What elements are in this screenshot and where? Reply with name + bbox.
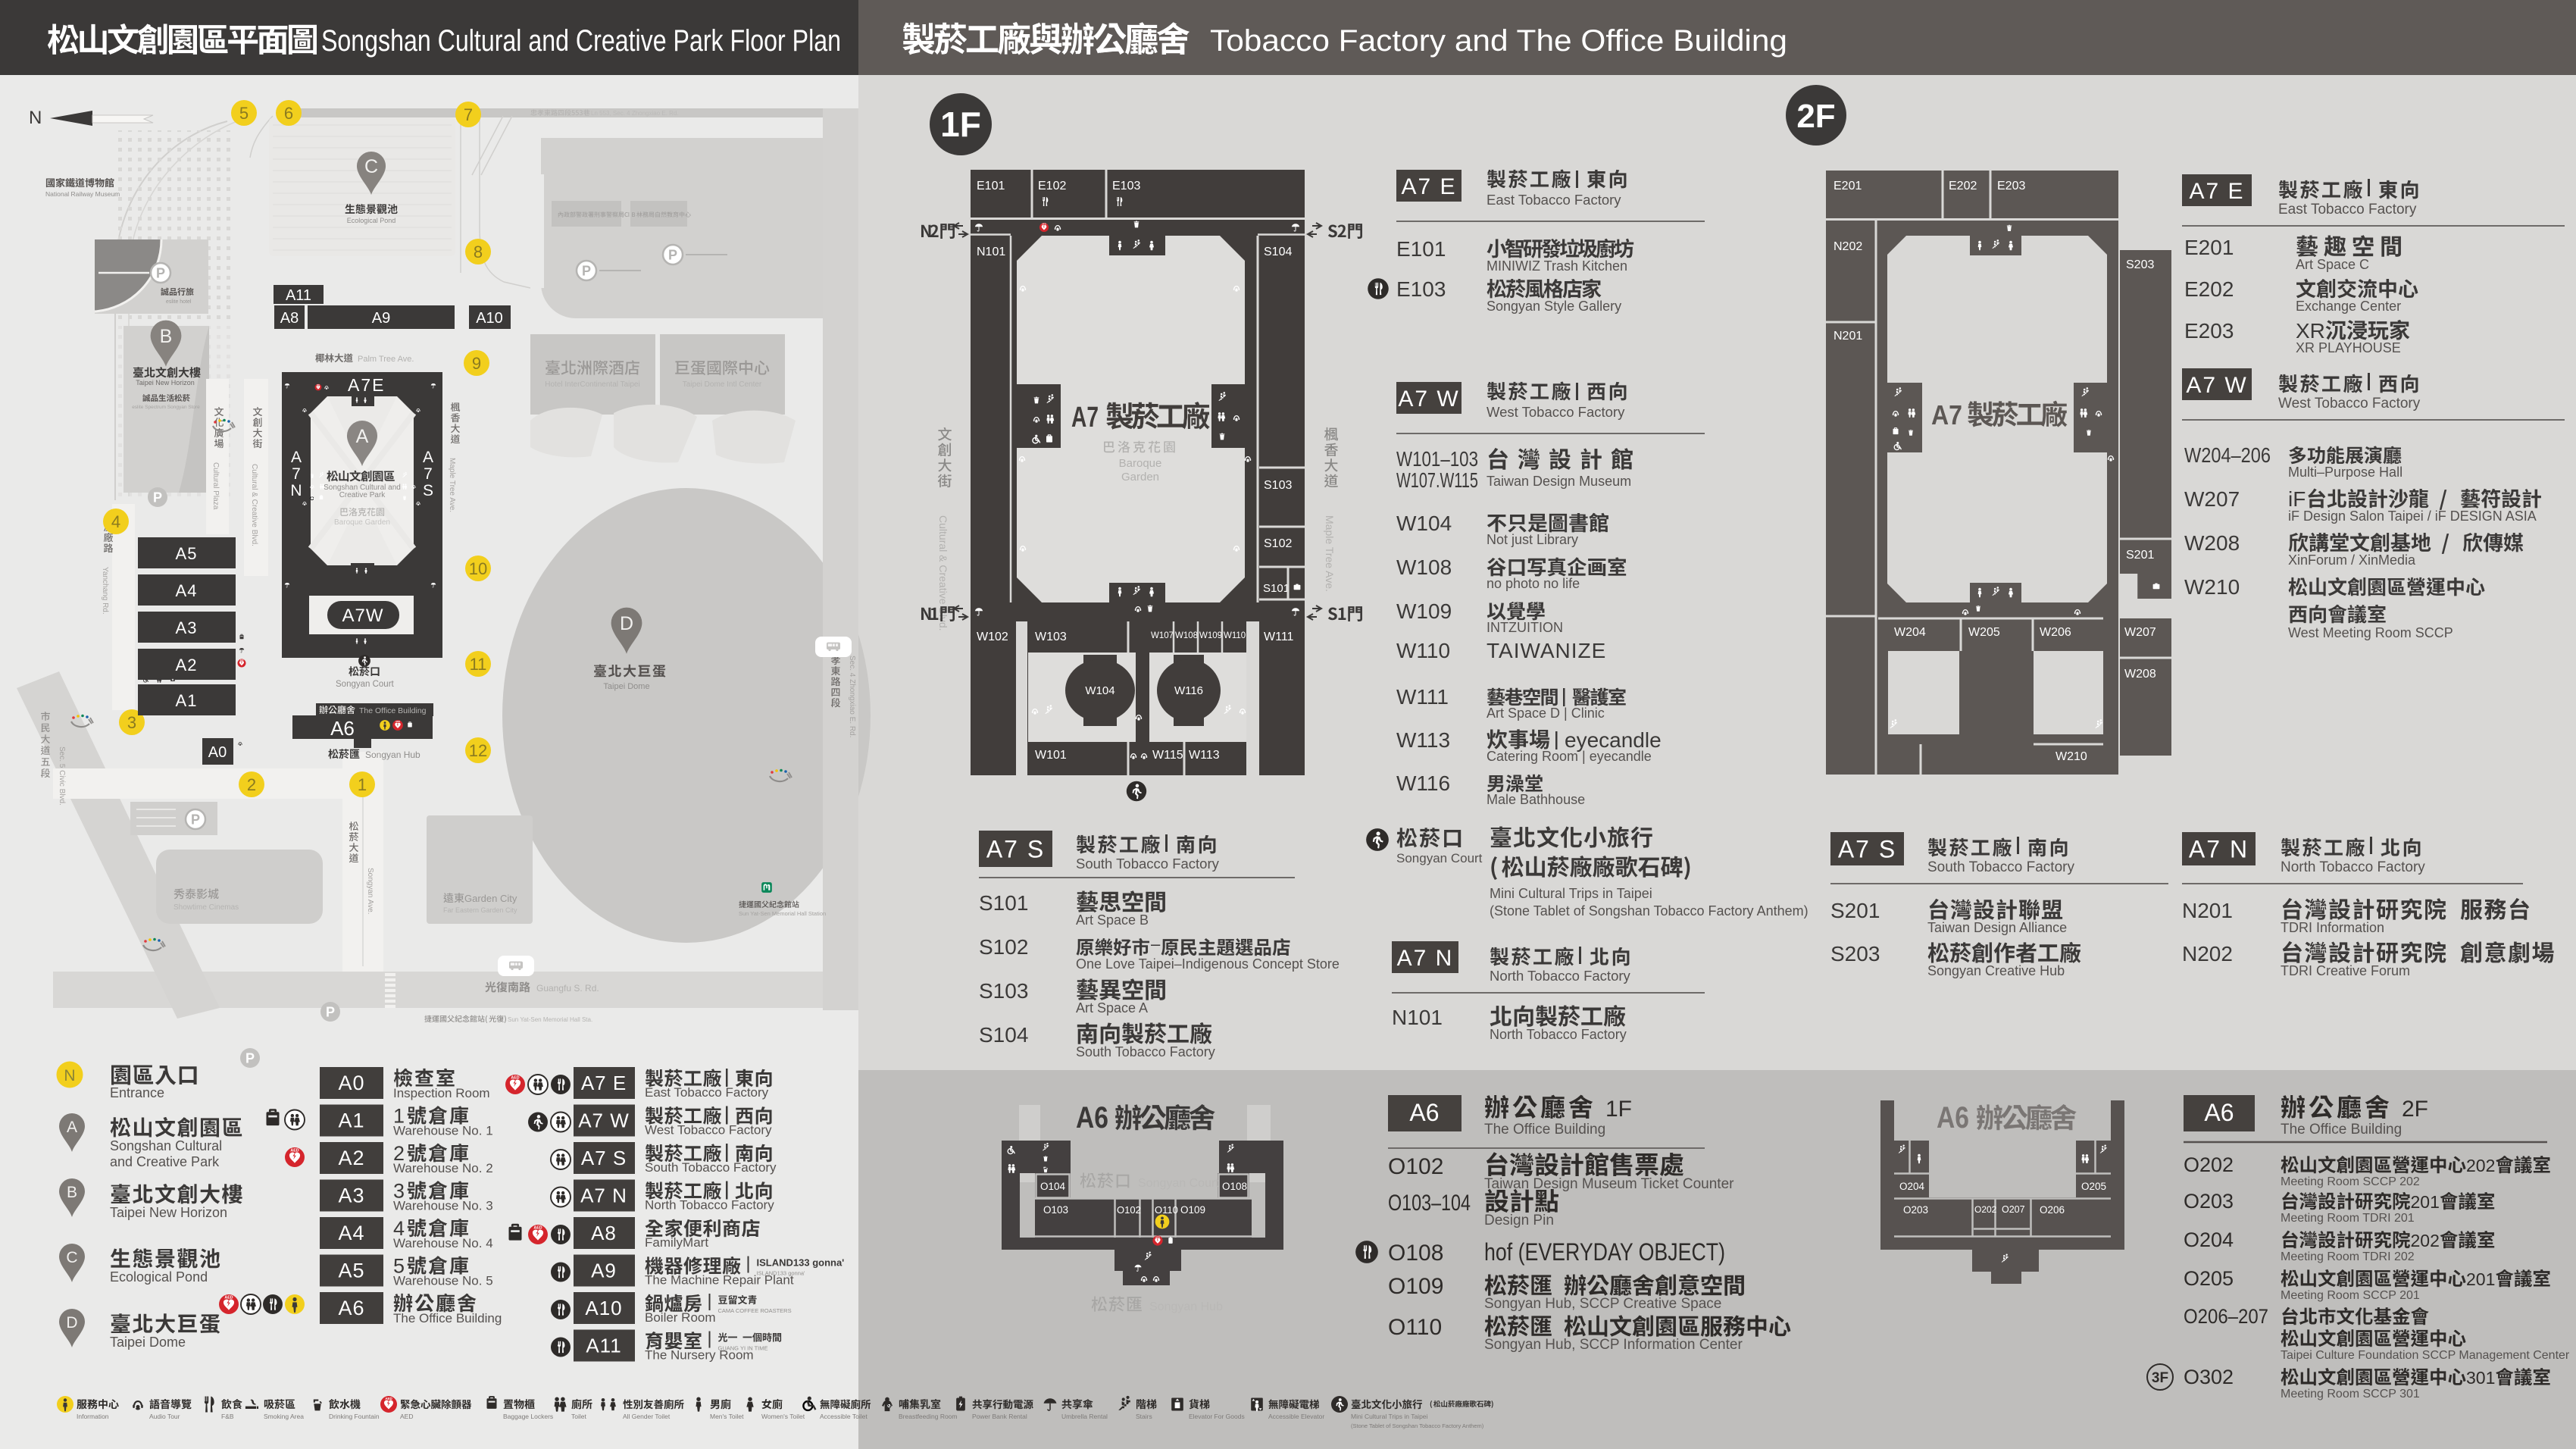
svg-text:Ecological Pond: Ecological Pond [110,1269,208,1285]
svg-text:W111: W111 [1264,631,1294,643]
svg-text:Toilet: Toilet [571,1413,586,1420]
svg-text:Taipei Dome: Taipei Dome [603,682,649,691]
svg-text:West Tobacco Factory: West Tobacco Factory [1487,404,1625,420]
svg-text:Smoking Area: Smoking Area [264,1413,304,1420]
svg-text:11: 11 [470,655,487,674]
svg-text:North Tobacco Factory: North Tobacco Factory [645,1198,774,1213]
svg-text:6: 6 [284,104,293,123]
svg-text:A0: A0 [208,744,227,761]
svg-text:S104: S104 [1264,246,1292,258]
svg-text:A7 N: A7 N [2189,836,2249,863]
svg-text:C: C [66,1249,77,1266]
svg-text:N: N [29,108,42,128]
svg-text:Boiler Room: Boiler Room [645,1310,716,1325]
svg-text:3F: 3F [2152,1370,2168,1386]
svg-text:A7E: A7E [348,375,385,395]
svg-text:Male Bathhouse: Male Bathhouse [1487,792,1585,807]
svg-text:–: – [1151,934,1161,953]
svg-text:W208: W208 [2124,668,2156,681]
svg-text:A6: A6 [1937,1101,1969,1134]
svg-text:O202: O202 [1974,1204,1997,1215]
svg-text:W109: W109 [1396,599,1452,623]
svg-text:S203: S203 [1830,942,1880,965]
svg-text:Songyan Style Gallery: Songyan Style Gallery [1487,299,1621,314]
svg-text:W210: W210 [2055,750,2087,763]
svg-text:N202: N202 [1834,240,1862,253]
svg-text:A9: A9 [591,1260,617,1282]
svg-text:E101: E101 [1396,237,1446,261]
svg-text:E101: E101 [977,180,1005,192]
svg-text:B: B [67,1184,77,1201]
svg-text:201: 201 [2411,1192,2440,1212]
svg-text:Taipei Culture Foundation SCCP: Taipei Culture Foundation SCCP Managemen… [2281,1349,2570,1362]
svg-text:Women's Toilet: Women's Toilet [761,1413,805,1420]
svg-text:O109: O109 [1180,1204,1205,1216]
svg-text:9: 9 [472,354,481,373]
svg-text:W210: W210 [2184,575,2240,599]
svg-text:W113: W113 [1396,728,1450,752]
svg-text:O205: O205 [2184,1267,2234,1290]
svg-text:Sec. 5 Civic Blvd.: Sec. 5 Civic Blvd. [58,746,66,806]
svg-text:A: A [291,449,302,466]
svg-text:W107.W115: W107.W115 [1396,468,1478,492]
svg-text:8: 8 [474,243,483,261]
svg-text:7: 7 [464,105,473,124]
svg-text:West Meeting Room SCCP: West Meeting Room SCCP [2288,625,2453,640]
svg-text:A8: A8 [280,310,299,327]
svg-text:A6: A6 [330,717,355,740]
svg-text:Ecological Pond: Ecological Pond [347,217,396,224]
svg-text:Stairs: Stairs [1136,1413,1152,1420]
svg-text:A3: A3 [338,1185,364,1207]
svg-text:Taipei Dome: Taipei Dome [110,1335,186,1350]
svg-text:Songyan Court: Songyan Court [1138,1177,1219,1190]
svg-text:O207: O207 [2002,1204,2025,1215]
svg-text:O109: O109 [1388,1274,1443,1299]
svg-text:O108: O108 [1388,1241,1443,1266]
svg-text:W204–206: W204–206 [2184,443,2271,467]
svg-text:Garden City: Garden City [464,893,517,904]
svg-text:Songshan Cultural and Creative: Songshan Cultural and Creative Park Floo… [321,24,841,58]
svg-text:N: N [64,1067,75,1084]
svg-text:XR: XR [2296,319,2325,343]
svg-text:W101–103: W101–103 [1396,447,1478,471]
svg-text:A3: A3 [176,618,198,637]
svg-text:W207: W207 [2124,626,2156,639]
svg-text:2F: 2F [1796,98,1835,135]
svg-text:Inspection Room: Inspection Room [393,1086,490,1100]
svg-text:Showtime Cinemas: Showtime Cinemas [174,903,239,912]
svg-text:W107: W107 [1151,631,1174,640]
svg-text:Not just Library: Not just Library [1487,532,1578,547]
svg-text:O206: O206 [2040,1204,2065,1216]
svg-text:A11: A11 [286,287,311,304]
svg-text:Songshan Cultural: Songshan Cultural [110,1138,222,1153]
svg-text:W110: W110 [1224,631,1246,640]
svg-text:Songyan Court: Songyan Court [1396,851,1483,865]
svg-text:Songyan Hub: Songyan Hub [365,750,420,760]
svg-text:B: B [160,326,173,347]
svg-text:W115: W115 [1152,749,1183,762]
svg-text:North Tobacco Factory: North Tobacco Factory [1490,968,1631,984]
svg-text:S203: S203 [2126,258,2154,271]
svg-text:E202: E202 [1949,180,1977,192]
svg-text:W101: W101 [1035,749,1067,762]
svg-text:Maple Tree Ave.: Maple Tree Ave. [448,458,456,512]
svg-text:2: 2 [247,775,256,794]
svg-text:GUANG YI IN TIME: GUANG YI IN TIME [718,1345,768,1352]
svg-text:Art Space D | Clinic: Art Space D | Clinic [1487,706,1605,721]
svg-text:eslite hotel: eslite hotel [166,299,192,305]
svg-text:eslite Spectrum Songyan Store: eslite Spectrum Songyan Store [132,405,200,410]
svg-text:W113: W113 [1189,749,1220,762]
svg-text:W104: W104 [1396,512,1452,535]
svg-text:Sun Yat-Sen Memorial Hall Stat: Sun Yat-Sen Memorial Hall Station [739,910,826,917]
svg-text:East Tobacco Factory: East Tobacco Factory [1487,192,1621,208]
svg-text:Far Eastern Garden City: Far Eastern Garden City [443,906,517,914]
svg-text:7: 7 [424,465,433,483]
svg-text:Meeting Room SCCP 201: Meeting Room SCCP 201 [2281,1289,2420,1302]
svg-text:Men's Toilet: Men's Toilet [710,1413,744,1420]
svg-text:Songyan Creative Hub: Songyan Creative Hub [1927,963,2065,978]
svg-text:Mini Cultural Trips in Taipei: Mini Cultural Trips in Taipei [1351,1413,1428,1420]
svg-text:1F: 1F [940,105,981,144]
svg-text:A6: A6 [2204,1099,2234,1126]
svg-text:E203: E203 [1997,180,2025,192]
svg-text:The Office Building: The Office Building [1484,1122,1605,1138]
svg-text:Elevator For Goods: Elevator For Goods [1189,1413,1245,1420]
svg-text:Songyan Court: Songyan Court [336,680,395,689]
svg-text:Taiwan Design Alliance: Taiwan Design Alliance [1927,920,2067,935]
svg-text:W104: W104 [1085,684,1114,697]
svg-text:Guangfu S. Rd.: Guangfu S. Rd. [536,983,599,994]
svg-text:1: 1 [358,775,367,794]
svg-text:Art Space C: Art Space C [2296,257,2369,272]
svg-text:Information: Information [77,1413,109,1420]
svg-text:Songyan Ave.: Songyan Ave. [366,868,374,915]
svg-text:Taipei New Horizon: Taipei New Horizon [110,1205,227,1220]
svg-text:Cultural Plaza: Cultural Plaza [211,462,220,510]
svg-text:iF: iF [2288,487,2306,511]
svg-text:A6: A6 [338,1297,364,1319]
svg-text:North Tobacco Factory: North Tobacco Factory [1490,1027,1627,1042]
svg-text:South Tobacco Factory: South Tobacco Factory [645,1160,777,1175]
svg-text:S103: S103 [979,979,1028,1003]
svg-text:A: A [67,1119,77,1136]
svg-text:O204: O204 [1899,1181,1925,1192]
svg-text:Warehouse No. 4: Warehouse No. 4 [393,1236,493,1250]
svg-text:(Stone Tablet of Songshan Toba: (Stone Tablet of Songshan Tobacco Factor… [1351,1422,1484,1429]
svg-text:One Love Taipei–Indigenous Con: One Love Taipei–Indigenous Concept Store [1076,956,1340,972]
svg-text:A: A [423,449,433,466]
svg-text:South Tobacco Factory: South Tobacco Factory [1076,1044,1215,1059]
svg-text:O102: O102 [1117,1204,1141,1216]
svg-text:O108: O108 [1222,1181,1247,1192]
svg-text:A7 N: A7 N [580,1185,627,1207]
svg-text:S: S [423,482,433,499]
svg-text:A6: A6 [1076,1101,1108,1134]
svg-text:West Tobacco Factory: West Tobacco Factory [645,1123,772,1138]
svg-text:O102: O102 [1388,1154,1443,1179]
svg-text:Meeting Room SCCP 301: Meeting Room SCCP 301 [2281,1388,2420,1400]
svg-text:The Office Building: The Office Building [393,1311,502,1325]
svg-text:201: 201 [2466,1269,2495,1289]
svg-text:S104: S104 [979,1023,1028,1047]
svg-text:W108: W108 [1396,556,1452,579]
svg-text:Warehouse No. 3: Warehouse No. 3 [393,1199,493,1213]
svg-text:N202: N202 [2182,942,2233,965]
svg-text:S102: S102 [979,935,1028,959]
svg-text:The Office Building: The Office Building [359,706,427,715]
svg-text:Drinking Fountain: Drinking Fountain [329,1413,380,1420]
svg-text:Catering Room | eyecandle: Catering Room | eyecandle [1487,749,1652,764]
svg-text:3: 3 [127,713,136,732]
svg-text:E202: E202 [2184,277,2234,301]
svg-text:C: C [364,156,378,177]
svg-text:Tobacco Factory and The Office: Tobacco Factory and The Office Building [1210,24,1787,58]
svg-text:Art Space A: Art Space A [1076,1000,1148,1016]
svg-text:INTZUITION: INTZUITION [1487,620,1563,635]
svg-text:A11: A11 [586,1335,621,1357]
svg-text:A4: A4 [338,1222,364,1244]
svg-text:A7: A7 [1931,399,1962,430]
svg-text:O203: O203 [2184,1190,2234,1213]
svg-text:Taiwan Design Museum Ticket Co: Taiwan Design Museum Ticket Counter [1484,1176,1734,1192]
svg-text:S201: S201 [1830,899,1880,922]
svg-text:E103: E103 [1396,277,1446,301]
svg-text:A7 E: A7 E [1401,174,1456,199]
svg-text:Baroque Garden: Baroque Garden [334,518,390,527]
svg-text:Taiwan Design Museum: Taiwan Design Museum [1487,474,1631,489]
svg-text:W108: W108 [1175,631,1198,640]
svg-text:A: A [356,426,369,447]
svg-text:5: 5 [239,104,249,123]
svg-text:S101: S101 [979,891,1028,915]
svg-text:D: D [620,613,633,634]
svg-text:XR PLAYHOUSE: XR PLAYHOUSE [2296,340,2401,355]
svg-text:Power Bank Rental: Power Bank Rental [972,1413,1027,1420]
svg-text:A9: A9 [372,310,390,327]
svg-text:Maple Tree Ave.: Maple Tree Ave. [1324,515,1336,592]
svg-text:Accessible Elevator: Accessible Elevator [1268,1413,1324,1420]
svg-text:A7 S: A7 S [581,1147,627,1169]
svg-text:202: 202 [2411,1231,2440,1250]
svg-text:A0: A0 [338,1072,364,1094]
svg-text:Ln 553, Sec. 4 Zhongxiao E. Rd: Ln 553, Sec. 4 Zhongxiao E. Rd. [591,110,679,117]
svg-text:W111: W111 [1396,685,1449,709]
svg-text:4: 4 [111,512,120,531]
svg-text:A10: A10 [476,310,503,327]
svg-text:no photo no life: no photo no life [1487,576,1580,591]
svg-text:Warehouse No. 1: Warehouse No. 1 [393,1124,493,1138]
svg-text:A2: A2 [176,656,198,674]
svg-text:W208: W208 [2184,531,2240,555]
svg-text:AED: AED [400,1413,413,1420]
svg-text:W116: W116 [1396,771,1450,795]
svg-text:D: D [66,1314,77,1332]
svg-text:O103: O103 [1043,1204,1068,1216]
svg-text:East Tobacco Factory: East Tobacco Factory [2278,202,2417,218]
svg-text:O204: O204 [2184,1228,2234,1251]
svg-text:N201: N201 [1834,330,1862,343]
svg-text:A7 W: A7 W [2186,373,2247,398]
svg-text:A1: A1 [176,691,198,710]
svg-text:O203: O203 [1903,1204,1928,1216]
svg-text:Hotel InterContinental Taipei: Hotel InterContinental Taipei [545,380,639,389]
svg-text:202: 202 [2466,1156,2495,1175]
svg-text:S201: S201 [2126,549,2154,562]
svg-text:All Gender Toilet: All Gender Toilet [623,1413,671,1420]
svg-text:O104: O104 [1040,1181,1066,1192]
svg-text:A5: A5 [176,544,198,563]
svg-text:South Tobacco Factory: South Tobacco Factory [1927,859,2074,875]
svg-text:Taipei New Horizon: Taipei New Horizon [136,379,195,387]
svg-text:Warehouse No. 5: Warehouse No. 5 [393,1274,493,1288]
svg-text:S103: S103 [1264,479,1292,492]
svg-text:O302: O302 [2184,1366,2234,1388]
svg-text:Accessible Toilet: Accessible Toilet [820,1413,868,1420]
svg-text:O206–207: O206–207 [2184,1305,2268,1328]
svg-text:E201: E201 [1834,180,1862,192]
svg-text:Palm Tree Ave.: Palm Tree Ave. [358,355,414,364]
svg-text:Songyan Hub: Songyan Hub [1149,1300,1223,1313]
svg-text:W103: W103 [1035,631,1067,643]
svg-text:South Tobacco Factory: South Tobacco Factory [1076,856,1220,872]
svg-text:O110: O110 [1388,1315,1442,1340]
svg-text:A4: A4 [176,581,198,600]
svg-text:(Stone Tablet of Songshan Toba: (Stone Tablet of Songshan Tobacco Factor… [1490,903,1809,919]
svg-text:Design Pin: Design Pin [1484,1213,1554,1228]
svg-text:A7W: A7W [342,606,383,626]
svg-text:East Tobacco Factory: East Tobacco Factory [645,1085,769,1100]
svg-text:O103–104: O103–104 [1388,1191,1471,1216]
svg-text:Meeting Room TDRI 202: Meeting Room TDRI 202 [2281,1250,2415,1263]
svg-text:O110: O110 [1155,1204,1178,1216]
svg-text:Meeting Room SCCP 202: Meeting Room SCCP 202 [2281,1175,2420,1188]
svg-text:N201: N201 [2182,899,2233,922]
svg-text:A7 N: A7 N [1397,946,1454,971]
svg-text:Sun Yat-Sen Memorial Hall Sta.: Sun Yat-Sen Memorial Hall Sta. [508,1016,592,1023]
svg-text:A7 S: A7 S [986,836,1045,863]
svg-text:Exchange Center: Exchange Center [2296,299,2401,314]
svg-text:North Tobacco Factory: North Tobacco Factory [2281,859,2425,875]
svg-text:MINIWIZ Trash Kitchen: MINIWIZ Trash Kitchen [1487,258,1627,274]
svg-text:N: N [290,482,302,499]
svg-text:Baggage Lockers: Baggage Lockers [503,1413,553,1420]
svg-text:TDRI Information: TDRI Information [2281,920,2384,935]
svg-text:Warehouse No. 2: Warehouse No. 2 [393,1161,493,1175]
svg-text:West Tobacco Factory: West Tobacco Factory [2278,396,2421,412]
svg-text:A7: A7 [1071,402,1099,433]
svg-text:301: 301 [2466,1368,2495,1388]
svg-text:A7 W: A7 W [1398,387,1459,412]
svg-text:National Railway Museum: National Railway Museum [45,190,120,198]
svg-text:hof (EVERYDAY OBJECT): hof (EVERYDAY OBJECT) [1484,1238,1725,1266]
svg-text:Songyan Hub, SCCP Creative Spa: Songyan Hub, SCCP Creative Space [1484,1296,1721,1312]
svg-text:A7 W: A7 W [578,1109,630,1132]
svg-text:W110: W110 [1396,639,1450,662]
svg-text:TAIWANIZE: TAIWANIZE [1487,639,1606,662]
svg-text:Garden: Garden [1121,471,1159,484]
svg-text:A10: A10 [585,1297,622,1319]
svg-text:A7 E: A7 E [2189,179,2244,204]
svg-text:ISLAND133 gonna': ISLAND133 gonna' [757,1257,845,1269]
svg-text:A1: A1 [338,1109,364,1132]
svg-text:O202: O202 [2184,1153,2234,1176]
svg-text:F&B: F&B [221,1413,234,1420]
svg-text:Songyan Hub, SCCP Information: Songyan Hub, SCCP Information Center [1484,1337,1743,1353]
svg-text:A8: A8 [591,1222,617,1244]
svg-text:Yanchang Rd.: Yanchang Rd. [101,567,109,615]
svg-text:XinForum / XinMedia: XinForum / XinMedia [2288,552,2416,568]
svg-text:A2: A2 [338,1147,364,1169]
svg-text:A7 S: A7 S [1838,836,1896,863]
svg-text:W205: W205 [1968,626,2000,639]
svg-text:Sec. 4 Zhongxiao E. Rd.: Sec. 4 Zhongxiao E. Rd. [848,656,856,737]
svg-text:W116: W116 [1174,684,1203,697]
svg-text:7: 7 [292,465,301,483]
svg-text:1F: 1F [1605,1097,1632,1122]
svg-text:Audio Tour: Audio Tour [149,1413,180,1420]
svg-text:A7 E: A7 E [581,1072,627,1094]
svg-text:E201: E201 [2184,236,2234,259]
svg-text:Multi–Purpose Hall: Multi–Purpose Hall [2288,465,2402,480]
svg-text:E102: E102 [1038,180,1066,192]
svg-text:S102: S102 [1264,537,1292,550]
svg-text:TDRI Creative Forum: TDRI Creative Forum [2281,963,2410,978]
svg-text:Cultural & Creative Blvd.: Cultural & Creative Blvd. [250,464,258,546]
svg-text:W102: W102 [977,631,1008,643]
svg-text:N101: N101 [977,246,1005,258]
svg-text:FamilyMart: FamilyMart [645,1235,708,1250]
svg-text:CAMA COFFEE ROASTERS: CAMA COFFEE ROASTERS [718,1307,792,1314]
svg-text:Baroque: Baroque [1119,457,1162,470]
svg-text:Taipei Dome Intl Center: Taipei Dome Intl Center [683,380,762,389]
svg-text:Mini Cultural Trips in Taipei: Mini Cultural Trips in Taipei [1490,886,1652,901]
svg-text:O205: O205 [2081,1181,2106,1192]
svg-text:Umbrella Rental: Umbrella Rental [1061,1413,1108,1420]
svg-text:A6: A6 [1409,1099,1439,1126]
svg-text:Art Space B: Art Space B [1076,912,1149,928]
svg-text:iF Design Salon Taipei / iF DE: iF Design Salon Taipei / iF DESIGN ASIA [2288,509,2537,524]
svg-text:E103: E103 [1112,180,1140,192]
svg-text:2F: 2F [2402,1097,2428,1122]
svg-text:S101: S101 [1263,582,1290,595]
svg-text:12: 12 [469,741,487,760]
svg-text:Meeting Room TDRI 201: Meeting Room TDRI 201 [2281,1212,2415,1225]
svg-text:W206: W206 [2040,626,2071,639]
svg-text:E203: E203 [2184,319,2234,343]
svg-text:The Office Building: The Office Building [2281,1122,2402,1138]
svg-text:and Creative Park: and Creative Park [110,1154,220,1169]
svg-text:10: 10 [469,559,487,578]
svg-text:A5: A5 [338,1260,364,1282]
svg-text:W204: W204 [1894,626,1926,639]
svg-text:W207: W207 [2184,487,2240,511]
svg-text:Breastfeeding Room: Breastfeeding Room [899,1413,958,1420]
svg-text:ISLAND133 gonna': ISLAND133 gonna' [757,1270,806,1277]
svg-text:Entrance: Entrance [110,1085,164,1100]
svg-text:N101: N101 [1392,1006,1443,1029]
svg-text:Cultural & Creative Blvd.: Cultural & Creative Blvd. [937,515,949,631]
svg-text:W109: W109 [1199,631,1222,640]
svg-text:Creative Park: Creative Park [339,491,386,499]
